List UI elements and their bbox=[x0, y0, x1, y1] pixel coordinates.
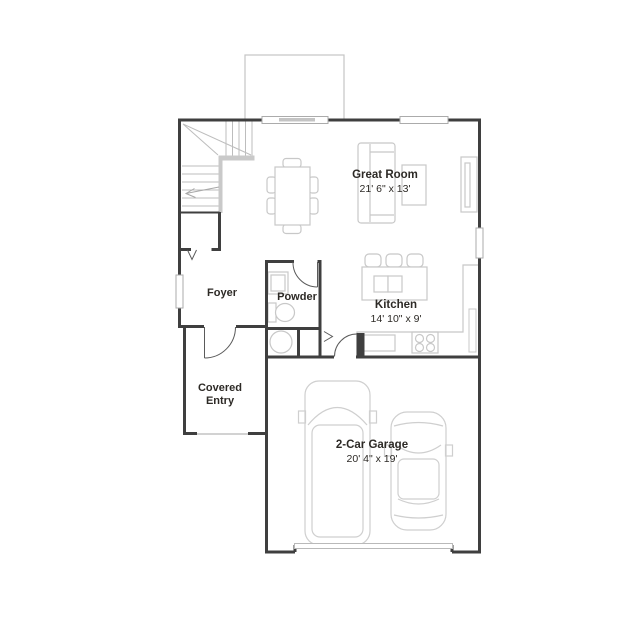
island-sink bbox=[374, 276, 388, 292]
island-sink bbox=[388, 276, 402, 292]
toilet bbox=[268, 303, 295, 322]
sliding-door-panel bbox=[279, 118, 315, 122]
window bbox=[176, 275, 183, 308]
garage-door bbox=[295, 544, 453, 549]
staircase bbox=[182, 121, 255, 213]
pickup-truck bbox=[299, 381, 377, 545]
vanity-sink bbox=[268, 272, 288, 294]
dining-chair bbox=[283, 159, 301, 168]
floor-plan-canvas: Great Room 21' 6" x 13' Kitchen 14' 10" … bbox=[0, 0, 640, 640]
floor-plan-drawing bbox=[0, 0, 640, 640]
dining-table bbox=[267, 159, 318, 234]
dishwasher bbox=[362, 335, 395, 351]
water-heater bbox=[270, 331, 292, 353]
front-door bbox=[205, 327, 236, 358]
media-console bbox=[461, 157, 477, 212]
patio bbox=[245, 55, 344, 120]
pantry bbox=[469, 309, 476, 352]
sofa bbox=[358, 143, 395, 223]
walls bbox=[178, 119, 481, 554]
powder-door bbox=[293, 262, 318, 287]
kitchen-island bbox=[362, 267, 427, 300]
stair-direction-arrow bbox=[186, 187, 219, 198]
bar-stools bbox=[365, 254, 423, 267]
garage-entry-door bbox=[324, 332, 357, 357]
closet-door-marker bbox=[188, 250, 197, 260]
dining-chair bbox=[283, 225, 301, 234]
wall-stub bbox=[357, 333, 365, 357]
window bbox=[400, 117, 448, 124]
coffee-table bbox=[402, 165, 426, 205]
car bbox=[385, 412, 453, 530]
window bbox=[476, 228, 483, 258]
range bbox=[412, 332, 438, 353]
